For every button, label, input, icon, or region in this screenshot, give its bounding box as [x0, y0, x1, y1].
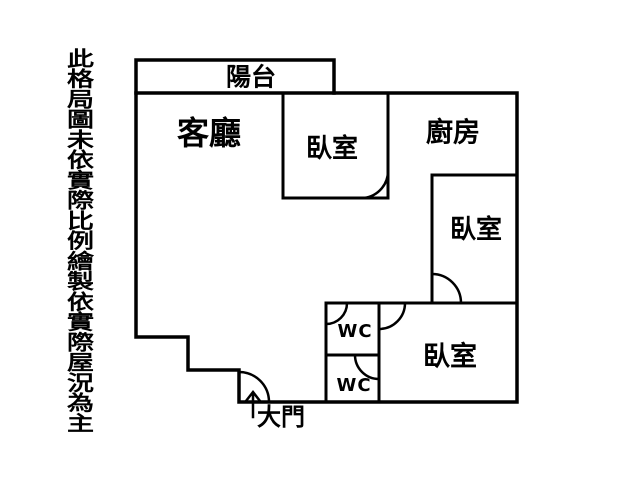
wc-lower-label: WC: [336, 377, 371, 395]
bedroom-bottom-label: 臥室: [423, 344, 477, 371]
living-room-label: 客廳: [177, 117, 241, 149]
bedroom-right-door-arc: [432, 274, 461, 303]
bedroom-bottom-door-arc: [379, 303, 405, 329]
bedroom-top-door-arc: [361, 171, 388, 198]
entrance-label: 大門: [257, 405, 305, 429]
floor-plan-drawing: [0, 0, 640, 480]
floor-plan-image: 此格局圖未依實際比例繪製依實際屋況為主: [0, 0, 640, 480]
wc-upper-label: WC: [337, 323, 372, 341]
bedroom-right-label: 臥室: [450, 217, 502, 243]
balcony-label: 陽台: [226, 65, 276, 90]
bedroom-top-label: 臥室: [306, 136, 358, 162]
kitchen-label: 廚房: [426, 120, 480, 147]
